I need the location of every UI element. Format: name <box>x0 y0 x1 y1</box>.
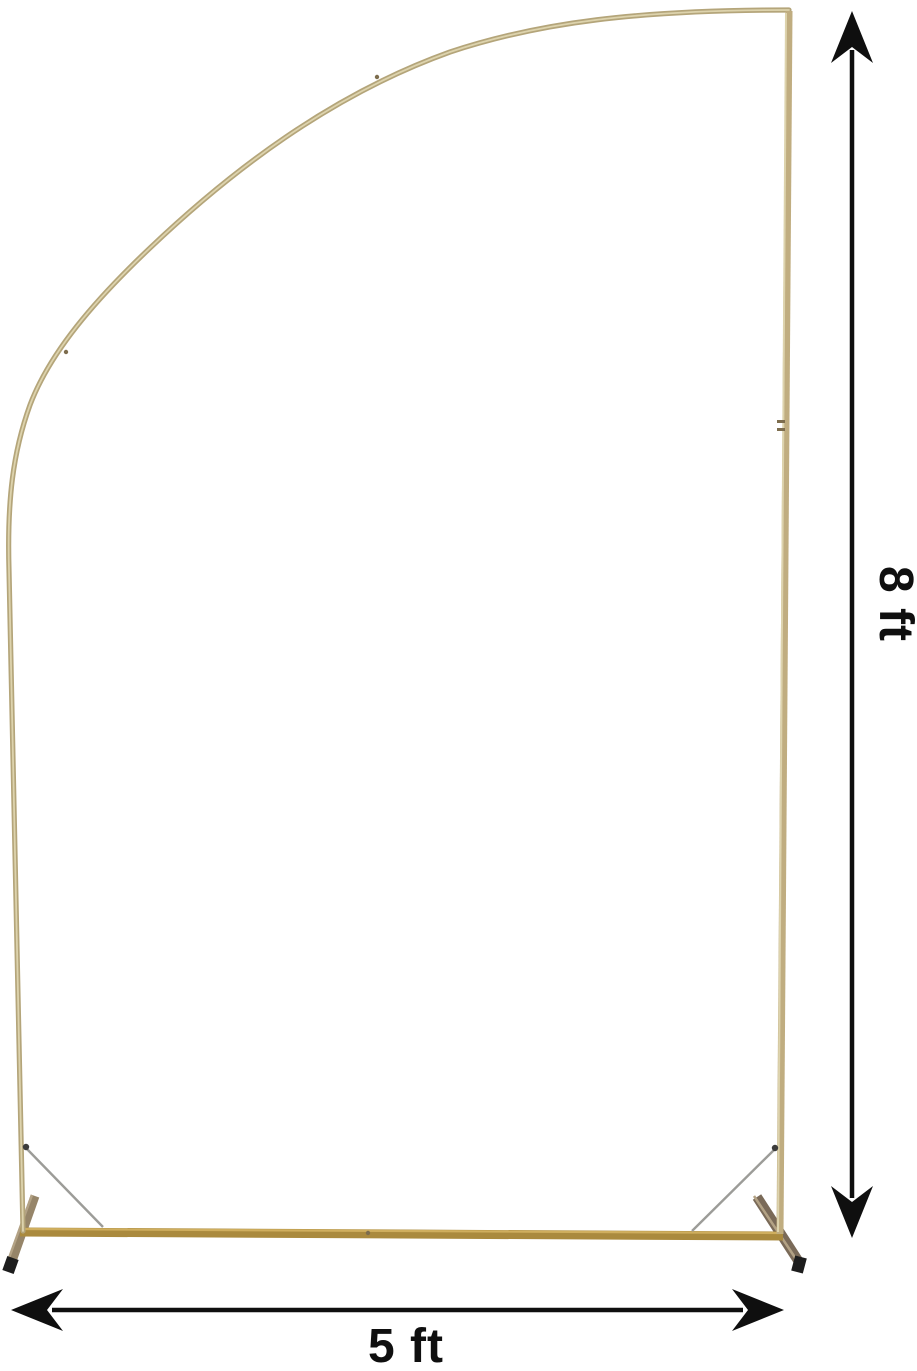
right-wire-anchor-screw <box>772 1145 778 1151</box>
left-wire-anchor-screw <box>23 1144 29 1150</box>
left-arch-tube-highlight <box>9 10 789 1231</box>
right-foot-highlight <box>754 1196 796 1259</box>
height-dimension-label: 8 ft <box>871 566 917 642</box>
pole-joint <box>777 428 785 431</box>
arch-stand-diagram <box>0 0 917 1371</box>
product-image-canvas: 8 ft 5 ft <box>0 0 917 1371</box>
arch-frame <box>9 10 789 1236</box>
dimension-arrows <box>11 11 873 1331</box>
tube-joint <box>375 75 379 79</box>
right-support-wire <box>692 1149 775 1231</box>
support-wires <box>23 1144 778 1231</box>
left-arch-tube <box>9 10 789 1231</box>
pole-joint <box>777 420 785 423</box>
left-foot-end-cap <box>8 1258 13 1272</box>
right-foot-end-cap <box>797 1257 801 1272</box>
tube-joint <box>64 350 68 354</box>
left-support-wire <box>26 1148 103 1227</box>
width-dimension-label: 5 ft <box>368 1323 444 1371</box>
base-joint <box>366 1231 370 1235</box>
